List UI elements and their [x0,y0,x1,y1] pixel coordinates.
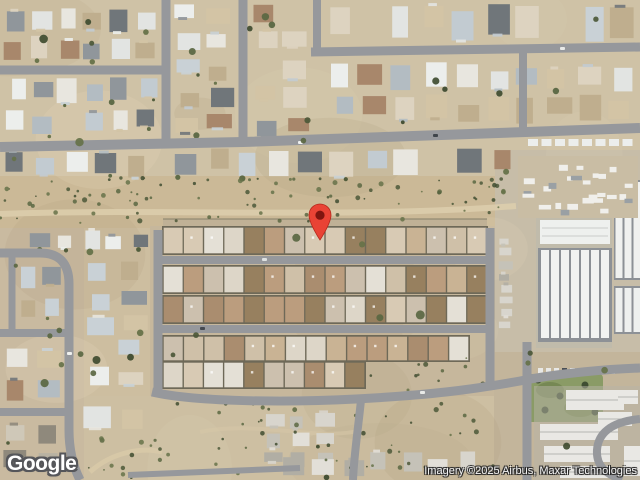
google-watermark[interactable]: Google [7,452,76,476]
map-viewport[interactable]: Google Imagery ©2025 Airbus, Maxar Techn… [0,0,640,480]
map-marker-icon[interactable] [308,203,332,241]
marker-pin-hole [315,211,324,220]
marker-pin-shape [309,204,331,240]
imagery-attribution: Imagery ©2025 Airbus, Maxar Technologies [424,465,637,477]
